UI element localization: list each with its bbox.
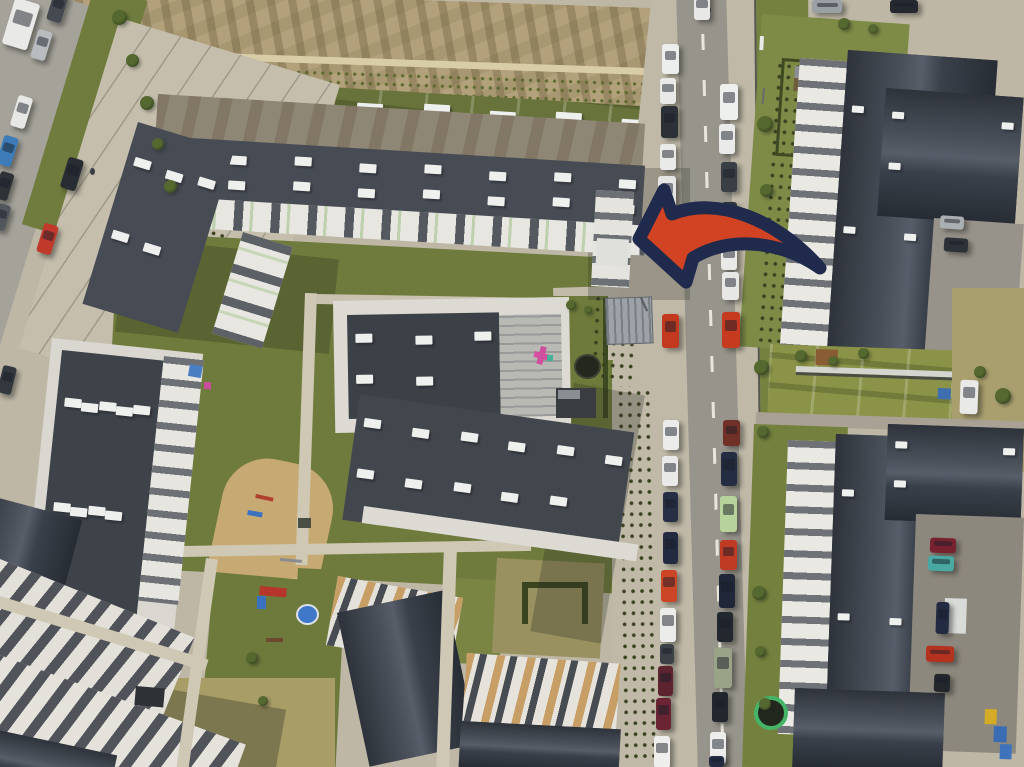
bin-yellow (984, 709, 997, 724)
parked-car (944, 237, 969, 253)
rooftop-unit (552, 197, 570, 207)
rooftop-unit (104, 510, 122, 521)
parked-car (721, 162, 737, 192)
leftmid-pink-item (204, 382, 211, 389)
play-item-mat (298, 518, 311, 528)
rooftop-unit (550, 495, 568, 506)
parked-car (722, 312, 740, 348)
car-windshield (12, 8, 34, 27)
tree (838, 18, 850, 30)
rooftop-unit (355, 333, 372, 342)
rightmid-blue-tarp (938, 388, 951, 399)
parked-car (714, 648, 732, 688)
tree (126, 54, 139, 67)
tree (152, 138, 164, 150)
car-windshield (658, 705, 669, 715)
parked-car (720, 540, 737, 570)
righttop-roof-wing (877, 88, 1024, 225)
rooftop-unit (358, 188, 376, 198)
rooftop-unit (889, 618, 901, 625)
car-windshield (0, 209, 8, 219)
parked-car (812, 0, 842, 13)
rooftop-unit (98, 401, 116, 412)
rooftop-unit (70, 507, 88, 518)
rooftop-unit (111, 230, 130, 244)
parked-car (722, 272, 739, 300)
car-windshield (696, 0, 707, 8)
rooftop-unit (852, 105, 864, 113)
bike-shelter (605, 296, 654, 345)
rooftop-unit (460, 431, 478, 442)
rightbottom-roof-wing (885, 424, 1024, 525)
car-windshield (2, 371, 14, 382)
tree (858, 348, 869, 359)
play-item-bench (266, 638, 283, 642)
car-windshield (723, 250, 734, 258)
parked-car (717, 612, 733, 642)
car-windshield (665, 321, 677, 331)
parked-car (662, 456, 678, 486)
rooftop-unit (1003, 448, 1015, 455)
car-windshield (948, 241, 965, 246)
courtyard-shed-roof (558, 390, 580, 399)
parked-car (719, 124, 735, 154)
center-building-roof-east (499, 314, 563, 417)
parked-car (694, 0, 710, 20)
rooftop-unit (487, 196, 505, 206)
car-windshield (665, 499, 676, 508)
car-windshield (723, 92, 736, 103)
courtyard-playset-green (547, 355, 553, 361)
parked-car (721, 244, 737, 270)
car-windshield (662, 84, 673, 92)
tree (140, 96, 154, 110)
bottomcenter-dark-b (459, 721, 621, 767)
car-windshield (723, 459, 734, 469)
car-windshield (665, 427, 676, 436)
person-a (90, 168, 95, 175)
parked-car (721, 452, 737, 486)
car-windshield (725, 278, 737, 286)
street-flag (759, 36, 764, 50)
parked-car (934, 674, 951, 693)
car-windshield (721, 581, 732, 591)
parked-car (661, 570, 677, 602)
rooftop-unit (115, 406, 133, 417)
rooftop-unit (363, 418, 381, 429)
parked-car (660, 644, 674, 664)
car-windshield (724, 208, 735, 216)
car-windshield (717, 657, 730, 669)
rooftop-unit (64, 398, 82, 409)
tree (112, 10, 127, 25)
car-windshield (723, 169, 734, 178)
rooftop-unit (508, 441, 526, 452)
parked-car (656, 698, 671, 730)
parked-car (662, 44, 679, 74)
parked-car (959, 380, 978, 415)
parked-car (719, 574, 735, 608)
rooftop-unit (356, 375, 373, 384)
parked-car (890, 0, 918, 13)
car-windshield (938, 609, 947, 619)
parked-car (720, 84, 738, 120)
rooftop-unit (895, 442, 907, 449)
rooftop-unit (424, 164, 442, 174)
car-windshield (726, 426, 738, 434)
rooftop-unit (356, 468, 374, 479)
rooftop-unit (293, 181, 311, 191)
tree (974, 366, 986, 378)
tree (757, 116, 773, 132)
rooftop-unit (453, 482, 471, 493)
rooftop-unit (416, 377, 433, 386)
rooftop-unit (197, 177, 216, 191)
car-windshield (662, 648, 672, 654)
car-windshield (714, 699, 725, 708)
parked-car (658, 666, 673, 696)
parked-car (720, 496, 737, 532)
rooftop-unit (294, 156, 312, 166)
rightbottom-roof-lower (792, 688, 945, 767)
courtyard-trampoline (574, 354, 601, 379)
play-item-spiral (296, 604, 319, 625)
tree (752, 586, 766, 600)
car-windshield (930, 649, 950, 654)
rooftop-unit (557, 445, 575, 456)
car-windshield (2, 141, 15, 153)
parked-car (709, 756, 724, 767)
car-windshield (721, 131, 732, 140)
car-windshield (656, 743, 667, 753)
rooftop-unit (904, 234, 916, 242)
parked-car (712, 692, 728, 722)
rooftop-unit (229, 155, 247, 165)
tree (246, 652, 258, 664)
car-windshield (934, 541, 952, 546)
tree (757, 426, 769, 438)
car-windshield (944, 218, 961, 223)
tree (164, 180, 177, 193)
car-windshield (662, 150, 673, 158)
car-windshield (711, 758, 722, 761)
car-windshield (664, 113, 676, 123)
rooftop-unit (415, 335, 432, 344)
car-windshield (723, 547, 735, 556)
rooftop-unit (842, 490, 854, 497)
aerial-photo (0, 0, 1024, 767)
tree (795, 350, 807, 362)
dry-hedge-left (522, 582, 528, 624)
rooftop-unit (142, 242, 161, 256)
parked-car (926, 646, 955, 663)
rooftop-unit (894, 480, 906, 487)
play-item-slide (257, 596, 266, 609)
parked-car (930, 538, 957, 554)
car-windshield (665, 51, 677, 60)
car-windshield (894, 3, 914, 7)
rooftop-unit (892, 112, 904, 120)
car-windshield (723, 504, 735, 515)
rooftop-unit (1001, 122, 1013, 130)
rooftop-unit (619, 179, 637, 189)
parked-car (654, 736, 670, 767)
rooftop-unit (888, 163, 900, 171)
car-windshield (664, 463, 675, 472)
car-windshield (725, 320, 738, 331)
parked-car (663, 532, 678, 564)
car-windshield (663, 577, 674, 587)
rooftop-unit (359, 163, 377, 173)
car-windshield (936, 678, 947, 684)
bin-blue-a (993, 726, 1007, 742)
car-windshield (719, 619, 730, 628)
tree (759, 698, 771, 710)
rooftop-unit (843, 226, 855, 234)
rooftop-unit (554, 172, 572, 182)
rooftop-unit (838, 613, 850, 620)
car-windshield (661, 183, 674, 193)
parked-car (663, 420, 679, 450)
bottomleft-shed (134, 686, 165, 707)
rooftop-unit (133, 157, 152, 171)
tree (754, 360, 769, 375)
car-windshield (66, 164, 80, 176)
car-windshield (52, 0, 65, 9)
parked-car (928, 556, 955, 572)
tree (868, 24, 878, 34)
parked-car (658, 176, 676, 210)
rooftop-unit (404, 478, 422, 489)
car-windshield (712, 739, 723, 749)
rooftop-unit (423, 189, 441, 199)
parked-car (660, 78, 676, 104)
tree (760, 184, 773, 197)
car-windshield (42, 229, 55, 241)
rooftop-unit (605, 455, 623, 466)
car-windshield (963, 387, 976, 398)
parked-car (940, 215, 965, 230)
tree (584, 306, 592, 314)
rooftop-unit (489, 171, 507, 181)
parked-car (661, 106, 678, 138)
parked-car (935, 602, 949, 634)
tree (995, 388, 1011, 404)
rooftop-unit (411, 428, 429, 439)
rooftop-unit (53, 502, 71, 513)
parked-car (662, 314, 679, 348)
rooftop-unit (474, 331, 491, 340)
rooftop-unit (133, 405, 151, 416)
rooftop-unit (501, 491, 519, 502)
tree (828, 356, 838, 366)
car-windshield (817, 3, 838, 7)
block-north-east-awning (596, 238, 629, 267)
car-windshield (662, 615, 673, 625)
rooftop-unit (81, 403, 99, 414)
tree (258, 696, 268, 706)
car-windshield (660, 673, 671, 682)
parked-car (663, 492, 678, 522)
parked-car (660, 608, 676, 642)
parked-car (722, 202, 737, 228)
car-windshield (932, 559, 950, 564)
rooftop-unit (87, 506, 105, 517)
car-windshield (36, 35, 49, 47)
car-windshield (665, 539, 676, 549)
tree (566, 300, 576, 310)
parked-car (723, 420, 740, 446)
car-windshield (0, 177, 11, 188)
parked-car (660, 144, 676, 170)
leftmid-blue-tarp (188, 364, 203, 378)
tree (755, 646, 766, 657)
car-windshield (16, 102, 29, 114)
bin-blue-b (999, 744, 1012, 759)
rooftop-unit (228, 180, 246, 190)
